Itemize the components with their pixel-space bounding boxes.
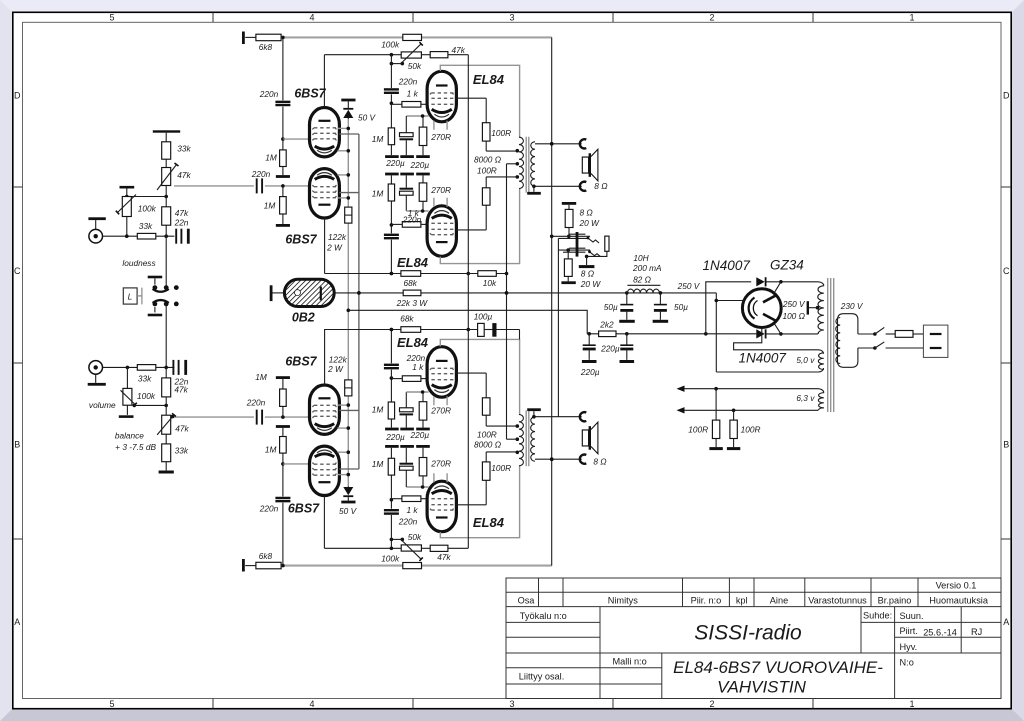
svg-text:47k: 47k [177,170,191,180]
svg-text:Liittyy osal.: Liittyy osal. [519,672,564,682]
svg-text:270R: 270R [430,458,451,468]
svg-text:25.6.-14: 25.6.-14 [923,628,957,638]
svg-text:0B2: 0B2 [292,311,315,325]
svg-text:6BS7: 6BS7 [285,232,317,246]
svg-text:SISSI-radio: SISSI-radio [694,622,802,645]
svg-text:220µ: 220µ [385,158,405,168]
svg-text:100R: 100R [491,463,511,473]
svg-text:100R: 100R [741,425,761,435]
svg-text:Suun.: Suun. [900,611,924,621]
svg-text:270R: 270R [430,185,451,195]
svg-text:270R: 270R [430,132,451,142]
svg-text:20 W: 20 W [580,279,602,289]
svg-text:1 k: 1 k [407,89,419,99]
svg-text:Aine: Aine [770,595,788,605]
svg-text:1M: 1M [264,201,276,211]
svg-text:100k: 100k [137,391,156,401]
svg-text:47k: 47k [175,424,189,434]
svg-text:B: B [1003,440,1009,450]
svg-text:volume: volume [89,400,116,410]
svg-text:N:o: N:o [900,658,914,668]
svg-text:22k 3 W: 22k 3 W [396,298,429,308]
svg-text:220n: 220n [259,89,279,99]
svg-text:8 Ω: 8 Ω [593,457,607,467]
svg-text:50µ: 50µ [674,302,688,312]
svg-text:EL84: EL84 [397,335,429,350]
svg-text:50µ: 50µ [604,302,618,312]
svg-text:47k: 47k [437,552,451,562]
svg-text:220n: 220n [259,504,279,514]
svg-text:10H: 10H [633,253,648,263]
svg-text:2k2: 2k2 [599,319,614,329]
svg-text:50 V: 50 V [358,112,377,122]
svg-text:A: A [1003,617,1009,627]
svg-text:33k: 33k [175,446,189,456]
svg-text:250 V: 250 V [782,299,806,309]
svg-text:220n: 220n [398,516,418,526]
svg-text:Osa: Osa [518,595,536,605]
svg-text:250 V: 250 V [677,281,701,291]
svg-text:1: 1 [909,13,914,23]
svg-text:EL84: EL84 [473,515,505,530]
svg-text:33k: 33k [138,374,152,384]
svg-text:Hyv.: Hyv. [900,642,918,652]
svg-text:1M: 1M [265,152,277,162]
svg-text:Br.paino: Br.paino [878,595,912,605]
svg-text:68k: 68k [400,313,414,323]
svg-text:1: 1 [909,699,914,709]
svg-text:kpl: kpl [736,595,748,605]
svg-text:220n: 220n [246,398,266,408]
svg-text:8 Ω: 8 Ω [580,208,594,218]
svg-text:2: 2 [709,13,714,23]
svg-text:220µ: 220µ [409,430,429,440]
svg-text:100R: 100R [688,425,708,435]
svg-text:1M: 1M [372,134,384,144]
svg-text:6BS7: 6BS7 [285,355,317,369]
svg-text:D: D [1003,91,1010,101]
svg-text:100µ: 100µ [474,312,493,322]
svg-text:5,0 v: 5,0 v [796,355,815,365]
svg-text:Varastotunnus: Varastotunnus [808,595,867,605]
svg-text:20 W: 20 W [579,218,601,228]
svg-text:1M: 1M [372,189,384,199]
svg-text:Työkalu n:o: Työkalu n:o [520,611,567,621]
svg-text:VAHVISTIN: VAHVISTIN [717,678,807,697]
svg-text:5: 5 [109,13,114,23]
svg-text:A: A [14,617,20,627]
svg-text:50k: 50k [408,532,422,542]
svg-text:1 k: 1 k [406,505,418,515]
svg-text:100R: 100R [477,430,497,440]
svg-text:68k: 68k [404,278,418,288]
svg-text:100 Ω: 100 Ω [782,311,805,321]
svg-text:L: L [128,292,133,302]
svg-text:Nimitys: Nimitys [608,595,639,605]
svg-text:220µ: 220µ [385,432,405,442]
svg-text:1N4007: 1N4007 [739,351,787,366]
svg-text:3: 3 [509,699,514,709]
svg-text:RJ: RJ [971,627,982,637]
svg-text:EL84-6BS7 VUOROVAIHE-: EL84-6BS7 VUOROVAIHE- [673,658,883,677]
svg-text:8000 Ω: 8000 Ω [474,155,502,165]
svg-text:200 mA: 200 mA [632,263,662,273]
svg-text:3: 3 [509,13,514,23]
svg-text:47k: 47k [452,45,466,55]
svg-text:8 Ω: 8 Ω [594,181,608,191]
svg-text:1M: 1M [372,459,384,469]
svg-text:4: 4 [309,699,314,709]
svg-text:100k: 100k [381,40,400,50]
svg-text:1M: 1M [255,372,267,382]
svg-text:Suhde:: Suhde: [863,611,892,621]
svg-text:1N4007: 1N4007 [703,258,751,273]
svg-text:220µ: 220µ [580,367,600,377]
svg-text:B: B [14,440,20,450]
svg-text:1M: 1M [372,404,384,414]
svg-text:6,3 v: 6,3 v [796,393,815,403]
svg-text:50k: 50k [408,61,422,71]
svg-text:4: 4 [309,13,314,23]
svg-text:22n: 22n [174,218,189,228]
svg-text:Malli n:o: Malli n:o [613,657,647,667]
svg-text:6BS7: 6BS7 [288,502,320,516]
svg-text:6BS7: 6BS7 [294,87,326,101]
svg-text:6k8: 6k8 [259,42,273,52]
svg-text:5: 5 [109,699,114,709]
svg-text:100R: 100R [477,166,497,176]
svg-text:220n: 220n [398,77,418,87]
svg-text:2: 2 [709,699,714,709]
svg-text:47k: 47k [174,385,188,395]
svg-text:122k: 122k [328,232,347,242]
svg-text:C: C [14,266,21,276]
svg-text:+ 3 -7.5 dB: + 3 -7.5 dB [115,442,156,452]
svg-text:loudness: loudness [122,258,155,268]
svg-text:Piirt.: Piirt. [900,626,918,636]
svg-text:8 Ω: 8 Ω [581,269,595,279]
svg-text:6k8: 6k8 [259,551,273,561]
svg-text:2 W: 2 W [327,364,344,374]
svg-text:33k: 33k [139,221,153,231]
svg-text:8000 Ω: 8000 Ω [474,439,502,449]
svg-text:D: D [14,91,21,101]
svg-text:C: C [1003,266,1010,276]
svg-text:100k: 100k [138,203,157,213]
svg-text:82 Ω: 82 Ω [633,275,652,285]
svg-text:33k: 33k [177,144,191,154]
svg-text:EL84: EL84 [397,255,429,270]
svg-text:2 W: 2 W [326,243,343,253]
svg-text:Huomautuksia: Huomautuksia [929,595,989,605]
svg-text:220n: 220n [402,215,422,225]
svg-text:100k: 100k [381,554,400,564]
svg-text:220n: 220n [251,169,271,179]
svg-text:230 V: 230 V [840,301,864,311]
svg-text:balance: balance [115,430,144,440]
svg-text:Versio 0.1: Versio 0.1 [936,581,977,591]
svg-text:Piir. n:o: Piir. n:o [691,595,722,605]
svg-text:10k: 10k [483,278,497,288]
svg-text:1M: 1M [265,445,277,455]
svg-text:EL84: EL84 [473,72,505,87]
svg-text:220µ: 220µ [409,160,429,170]
svg-text:270R: 270R [430,406,451,416]
svg-text:50 V: 50 V [339,506,358,516]
svg-text:GZ34: GZ34 [770,258,804,273]
svg-text:100R: 100R [491,128,511,138]
svg-text:1 k: 1 k [412,362,424,372]
svg-text:220µ: 220µ [600,344,620,354]
